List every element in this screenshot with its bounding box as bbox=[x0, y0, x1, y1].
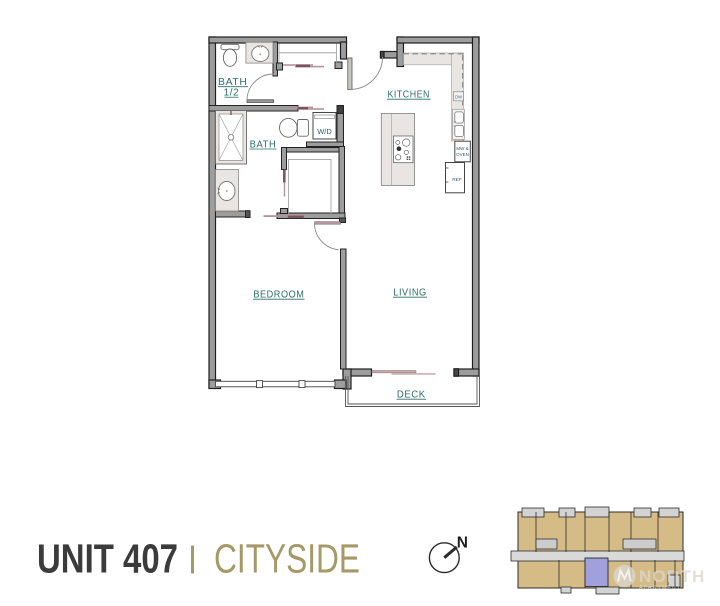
svg-text:UNIT 407: UNIT 407 bbox=[37, 535, 178, 581]
svg-text:MW &: MW & bbox=[456, 146, 468, 151]
svg-text:DW: DW bbox=[455, 95, 462, 100]
svg-text:CITYSIDE: CITYSIDE bbox=[214, 536, 360, 582]
svg-text:REF: REF bbox=[452, 177, 462, 183]
svg-text:OVEN: OVEN bbox=[456, 152, 469, 157]
svg-text:NORTH: NORTH bbox=[639, 567, 705, 586]
svg-text:W/D: W/D bbox=[317, 127, 332, 136]
svg-text:N: N bbox=[457, 535, 468, 552]
